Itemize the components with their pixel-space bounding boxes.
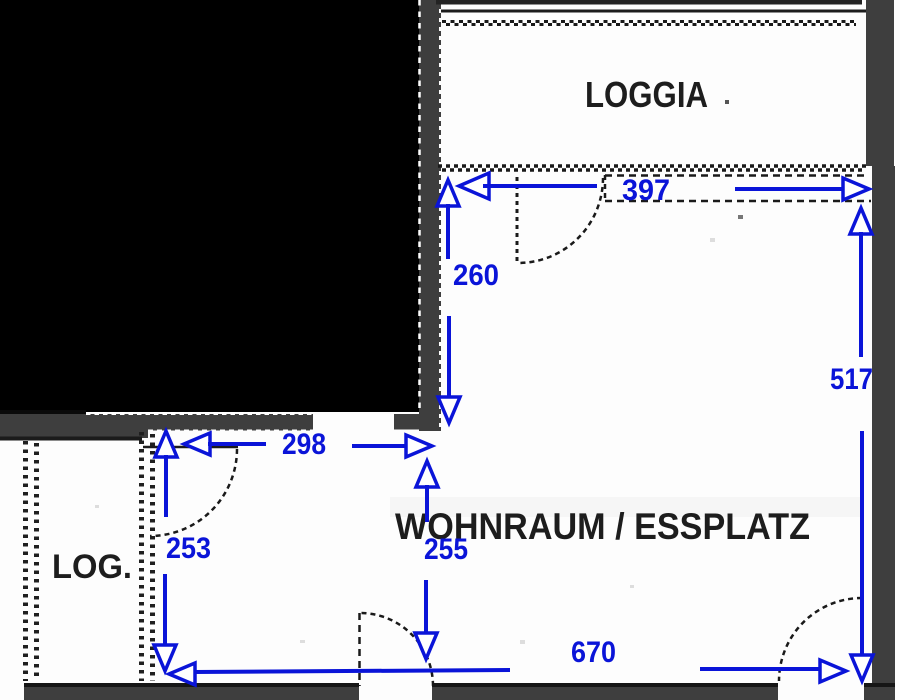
- svg-text:255: 255: [424, 533, 468, 566]
- svg-text:397: 397: [622, 174, 670, 207]
- svg-text:253: 253: [166, 532, 211, 565]
- svg-text:670: 670: [571, 636, 616, 669]
- svg-text:LOGGIA: LOGGIA: [585, 74, 708, 115]
- svg-text:260: 260: [453, 259, 499, 292]
- svg-text:LOG.: LOG.: [52, 548, 132, 586]
- svg-text:298: 298: [282, 428, 326, 461]
- svg-text:517: 517: [830, 363, 873, 396]
